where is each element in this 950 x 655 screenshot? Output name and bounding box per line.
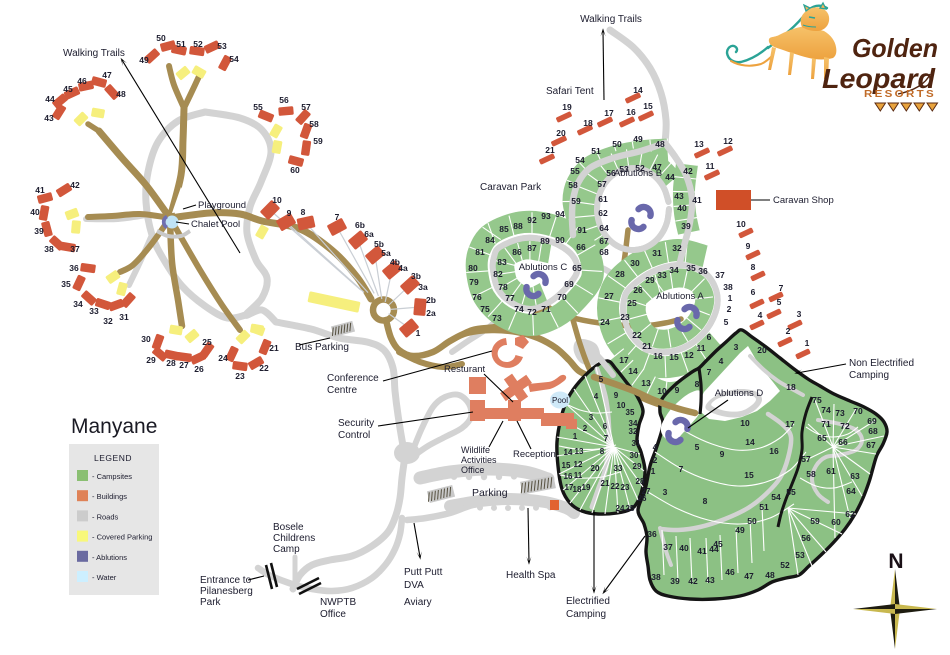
- svg-text:74: 74: [514, 304, 524, 314]
- svg-text:32: 32: [629, 427, 638, 436]
- svg-text:Activities: Activities: [461, 455, 497, 465]
- svg-text:Caravan Park: Caravan Park: [480, 182, 542, 193]
- svg-text:52: 52: [193, 39, 203, 49]
- svg-text:Walking Trails: Walking Trails: [580, 14, 642, 25]
- svg-text:37: 37: [715, 270, 725, 280]
- svg-text:36: 36: [69, 263, 79, 273]
- svg-text:4: 4: [758, 310, 763, 320]
- svg-text:20: 20: [556, 128, 566, 138]
- svg-text:13: 13: [694, 139, 704, 149]
- svg-text:Health Spa: Health Spa: [506, 570, 556, 581]
- svg-text:22: 22: [259, 363, 269, 373]
- svg-text:26: 26: [633, 285, 643, 295]
- svg-text:20: 20: [591, 464, 600, 473]
- svg-text:22: 22: [611, 482, 620, 491]
- svg-text:Childrens: Childrens: [273, 533, 315, 544]
- svg-text:Safari Tent: Safari Tent: [546, 86, 594, 97]
- svg-text:35: 35: [61, 279, 71, 289]
- svg-text:63: 63: [850, 471, 860, 481]
- svg-text:37: 37: [70, 244, 80, 254]
- svg-text:17: 17: [619, 355, 629, 365]
- svg-text:75: 75: [480, 304, 490, 314]
- svg-text:46: 46: [77, 76, 87, 86]
- svg-text:59: 59: [313, 136, 323, 146]
- svg-text:8: 8: [695, 379, 700, 389]
- svg-text:77: 77: [505, 293, 515, 303]
- svg-text:11: 11: [697, 343, 706, 353]
- svg-text:3: 3: [663, 487, 668, 497]
- svg-text:Electrified: Electrified: [566, 596, 610, 607]
- svg-text:1: 1: [728, 293, 733, 303]
- svg-text:39: 39: [681, 221, 691, 231]
- svg-text:31: 31: [652, 248, 662, 258]
- svg-text:24: 24: [616, 504, 625, 513]
- svg-text:Camping: Camping: [566, 609, 606, 620]
- svg-text:7: 7: [679, 464, 684, 474]
- svg-text:17: 17: [785, 419, 795, 429]
- svg-text:76: 76: [472, 292, 482, 302]
- svg-text:62: 62: [845, 509, 855, 519]
- svg-text:Office: Office: [461, 465, 484, 475]
- svg-text:Ablutions A: Ablutions A: [656, 291, 704, 302]
- svg-text:15: 15: [562, 461, 571, 470]
- svg-text:16: 16: [653, 351, 663, 361]
- svg-text:21: 21: [601, 479, 610, 488]
- svg-text:9: 9: [675, 385, 680, 395]
- svg-text:24: 24: [600, 317, 610, 327]
- svg-text:9: 9: [614, 391, 619, 400]
- svg-text:Pilanesberg: Pilanesberg: [200, 586, 253, 597]
- svg-text:51: 51: [176, 39, 186, 49]
- svg-text:87: 87: [527, 243, 537, 253]
- svg-text:Conference: Conference: [327, 373, 379, 384]
- svg-text:49: 49: [633, 134, 643, 144]
- svg-text:44: 44: [709, 544, 719, 554]
- svg-text:19: 19: [562, 102, 572, 112]
- svg-text:70: 70: [557, 292, 567, 302]
- svg-text:60: 60: [831, 517, 841, 527]
- svg-text:Security: Security: [338, 418, 374, 429]
- svg-text:9: 9: [746, 241, 751, 251]
- svg-text:69: 69: [867, 416, 877, 426]
- svg-text:3b: 3b: [411, 271, 421, 281]
- svg-text:64: 64: [846, 486, 856, 496]
- svg-text:14: 14: [628, 366, 638, 376]
- svg-text:8: 8: [600, 447, 605, 456]
- svg-text:17: 17: [604, 108, 614, 118]
- svg-text:8: 8: [301, 207, 306, 217]
- svg-text:6: 6: [751, 287, 756, 297]
- svg-text:59: 59: [810, 516, 820, 526]
- svg-text:15: 15: [643, 101, 653, 111]
- svg-text:61: 61: [826, 466, 836, 476]
- svg-text:66: 66: [576, 242, 586, 252]
- svg-text:81: 81: [475, 247, 485, 257]
- svg-text:16: 16: [626, 107, 636, 117]
- svg-text:32: 32: [672, 243, 682, 253]
- svg-text:15: 15: [744, 470, 754, 480]
- svg-text:4: 4: [653, 442, 658, 452]
- svg-text:73: 73: [492, 313, 502, 323]
- svg-text:43: 43: [44, 113, 54, 123]
- svg-text:4: 4: [719, 356, 724, 366]
- svg-text:50: 50: [612, 139, 622, 149]
- svg-text:70: 70: [853, 406, 863, 416]
- svg-text:39: 39: [670, 576, 680, 586]
- svg-text:28: 28: [636, 477, 645, 486]
- svg-text:20: 20: [757, 345, 767, 355]
- svg-text:57: 57: [301, 102, 311, 112]
- svg-text:59: 59: [571, 196, 581, 206]
- svg-text:4: 4: [594, 392, 599, 401]
- svg-text:56: 56: [801, 533, 811, 543]
- svg-text:91: 91: [577, 225, 587, 235]
- svg-text:Office: Office: [320, 609, 346, 620]
- svg-text:NWPTB: NWPTB: [320, 597, 356, 608]
- svg-text:67: 67: [599, 236, 609, 246]
- svg-text:69: 69: [564, 279, 574, 289]
- svg-text:Wildlife: Wildlife: [461, 445, 490, 455]
- svg-text:50: 50: [747, 516, 757, 526]
- svg-text:1: 1: [573, 432, 578, 441]
- svg-text:Reception: Reception: [513, 449, 556, 460]
- svg-text:44: 44: [45, 94, 55, 104]
- svg-text:Putt Putt: Putt Putt: [404, 567, 443, 578]
- svg-text:15: 15: [669, 352, 679, 362]
- svg-text:58: 58: [568, 180, 578, 190]
- svg-text:10: 10: [272, 195, 282, 205]
- svg-text:Manyane: Manyane: [71, 415, 157, 438]
- svg-text:2: 2: [727, 304, 732, 314]
- svg-text:52: 52: [780, 560, 790, 570]
- svg-text:- Ablutions: - Ablutions: [92, 553, 127, 562]
- svg-text:5: 5: [599, 375, 604, 384]
- svg-text:51: 51: [591, 146, 601, 156]
- svg-text:7: 7: [707, 367, 712, 377]
- svg-text:42: 42: [688, 576, 698, 586]
- svg-text:21: 21: [545, 145, 555, 155]
- svg-text:- Roads: - Roads: [92, 512, 119, 521]
- svg-text:23: 23: [620, 312, 630, 322]
- svg-text:12: 12: [684, 350, 694, 360]
- svg-text:Bosele: Bosele: [273, 522, 304, 533]
- svg-text:29: 29: [633, 462, 642, 471]
- svg-text:11: 11: [706, 161, 715, 171]
- svg-text:1: 1: [416, 328, 421, 338]
- svg-text:86: 86: [512, 247, 522, 257]
- svg-text:11: 11: [574, 471, 583, 480]
- svg-text:72: 72: [527, 307, 537, 317]
- svg-text:3: 3: [797, 309, 802, 319]
- svg-text:27: 27: [604, 291, 614, 301]
- svg-text:48: 48: [765, 570, 775, 580]
- svg-text:5: 5: [695, 442, 700, 452]
- svg-text:6a: 6a: [364, 229, 374, 239]
- svg-text:Parking: Parking: [472, 487, 508, 499]
- svg-text:12: 12: [723, 136, 733, 146]
- svg-text:Entrance to: Entrance to: [200, 575, 252, 586]
- svg-text:80: 80: [468, 263, 478, 273]
- svg-text:55: 55: [570, 166, 580, 176]
- svg-text:19: 19: [582, 483, 591, 492]
- svg-text:64: 64: [599, 223, 609, 233]
- svg-text:39: 39: [34, 226, 44, 236]
- svg-text:- Covered Parking: - Covered Parking: [92, 533, 152, 542]
- svg-text:33: 33: [657, 270, 667, 280]
- svg-text:40: 40: [679, 543, 689, 553]
- svg-text:22: 22: [632, 330, 642, 340]
- svg-text:83: 83: [497, 257, 507, 267]
- svg-text:35: 35: [626, 408, 635, 417]
- svg-text:10: 10: [740, 418, 750, 428]
- svg-text:57: 57: [801, 454, 811, 464]
- svg-text:- Water: - Water: [92, 573, 117, 582]
- svg-text:65: 65: [817, 433, 827, 443]
- svg-text:41: 41: [692, 195, 702, 205]
- svg-text:67: 67: [866, 440, 876, 450]
- svg-text:25: 25: [627, 298, 637, 308]
- svg-text:24: 24: [218, 353, 228, 363]
- svg-text:47: 47: [744, 571, 754, 581]
- svg-text:41: 41: [35, 185, 45, 195]
- svg-text:3: 3: [589, 413, 594, 422]
- svg-text:Chalet Pool: Chalet Pool: [191, 219, 240, 230]
- svg-text:54: 54: [229, 54, 239, 64]
- svg-text:42: 42: [70, 180, 80, 190]
- svg-text:40: 40: [30, 207, 40, 217]
- svg-text:32: 32: [103, 316, 113, 326]
- svg-text:94: 94: [555, 209, 565, 219]
- svg-text:34: 34: [73, 299, 83, 309]
- svg-text:27: 27: [179, 360, 189, 370]
- svg-text:37: 37: [663, 542, 673, 552]
- svg-text:41: 41: [697, 546, 707, 556]
- svg-text:16: 16: [564, 472, 573, 481]
- svg-text:DVA: DVA: [404, 580, 424, 591]
- svg-text:- Buildings: - Buildings: [92, 492, 127, 501]
- svg-text:Playground: Playground: [198, 200, 246, 211]
- svg-text:71: 71: [821, 419, 831, 429]
- svg-text:4a: 4a: [398, 263, 408, 273]
- svg-text:2: 2: [653, 455, 658, 465]
- svg-text:68: 68: [868, 426, 878, 436]
- svg-text:71: 71: [541, 304, 551, 314]
- svg-text:29: 29: [645, 275, 655, 285]
- svg-text:1: 1: [805, 338, 810, 348]
- svg-text:79: 79: [469, 277, 479, 287]
- svg-text:2: 2: [786, 326, 791, 336]
- svg-text:65: 65: [572, 263, 582, 273]
- svg-text:54: 54: [575, 155, 585, 165]
- svg-text:66: 66: [838, 437, 848, 447]
- svg-text:Resturant: Resturant: [444, 364, 486, 375]
- svg-text:Non Electrified: Non Electrified: [849, 358, 914, 369]
- svg-text:36: 36: [698, 266, 708, 276]
- svg-text:38: 38: [651, 572, 661, 582]
- svg-text:46: 46: [725, 567, 735, 577]
- svg-text:92: 92: [527, 215, 537, 225]
- svg-text:40: 40: [677, 203, 687, 213]
- svg-text:2: 2: [583, 424, 588, 433]
- svg-text:33: 33: [89, 306, 99, 316]
- svg-text:8: 8: [751, 262, 756, 272]
- svg-text:30: 30: [141, 334, 151, 344]
- svg-text:- Campsites: - Campsites: [92, 472, 132, 481]
- svg-text:28: 28: [166, 358, 176, 368]
- svg-text:Golden: Golden: [852, 33, 938, 63]
- svg-text:21: 21: [642, 341, 652, 351]
- svg-text:16: 16: [769, 446, 779, 456]
- svg-text:14: 14: [633, 85, 643, 95]
- svg-text:38: 38: [723, 282, 733, 292]
- svg-text:14: 14: [745, 437, 755, 447]
- svg-text:Park: Park: [200, 597, 222, 608]
- svg-text:43: 43: [705, 575, 715, 585]
- svg-text:43: 43: [674, 191, 684, 201]
- svg-text:53: 53: [217, 41, 227, 51]
- svg-text:9: 9: [720, 449, 725, 459]
- svg-text:14: 14: [564, 448, 573, 457]
- svg-text:55: 55: [253, 102, 263, 112]
- svg-text:85: 85: [499, 224, 509, 234]
- svg-text:88: 88: [513, 221, 523, 231]
- svg-text:56: 56: [279, 95, 289, 105]
- svg-text:Ablutions B: Ablutions B: [614, 168, 662, 179]
- svg-text:29: 29: [146, 355, 156, 365]
- svg-text:5a: 5a: [381, 248, 391, 258]
- svg-text:26: 26: [638, 494, 647, 503]
- svg-text:7: 7: [604, 434, 609, 443]
- svg-text:55: 55: [786, 487, 796, 497]
- svg-text:82: 82: [493, 269, 503, 279]
- svg-text:Aviary: Aviary: [404, 597, 432, 608]
- svg-text:Pool: Pool: [552, 396, 568, 405]
- svg-text:12: 12: [574, 460, 583, 469]
- svg-text:58: 58: [806, 469, 816, 479]
- svg-text:51: 51: [759, 502, 769, 512]
- svg-text:6: 6: [707, 332, 712, 342]
- svg-text:10: 10: [657, 386, 667, 396]
- svg-text:44: 44: [665, 172, 675, 182]
- svg-text:47: 47: [102, 70, 112, 80]
- svg-text:Caravan Shop: Caravan Shop: [773, 195, 834, 206]
- svg-text:23: 23: [621, 483, 630, 492]
- svg-text:LEGEND: LEGEND: [94, 453, 132, 463]
- svg-text:Camp: Camp: [273, 544, 300, 555]
- svg-text:78: 78: [498, 282, 508, 292]
- svg-text:3: 3: [734, 342, 739, 352]
- svg-text:1: 1: [651, 466, 656, 476]
- svg-text:36: 36: [647, 529, 657, 539]
- svg-text:49: 49: [735, 525, 745, 535]
- svg-text:23: 23: [235, 371, 245, 381]
- svg-text:93: 93: [541, 211, 551, 221]
- svg-text:2a: 2a: [426, 308, 436, 318]
- svg-text:30: 30: [630, 258, 640, 268]
- svg-text:6: 6: [603, 422, 608, 431]
- svg-text:Centre: Centre: [327, 385, 357, 396]
- svg-text:73: 73: [835, 408, 845, 418]
- svg-text:25: 25: [626, 504, 635, 513]
- svg-text:9: 9: [287, 208, 292, 218]
- svg-text:33: 33: [614, 464, 623, 473]
- svg-text:45: 45: [63, 84, 73, 94]
- svg-text:35: 35: [686, 263, 696, 273]
- svg-text:Ablutions D: Ablutions D: [715, 388, 764, 399]
- svg-text:3a: 3a: [418, 282, 428, 292]
- svg-text:54: 54: [771, 492, 781, 502]
- svg-text:13: 13: [641, 378, 651, 388]
- svg-text:8: 8: [703, 496, 708, 506]
- svg-text:38: 38: [44, 244, 54, 254]
- svg-text:68: 68: [599, 247, 609, 257]
- svg-text:18: 18: [786, 382, 796, 392]
- svg-text:75: 75: [812, 395, 822, 405]
- svg-text:25: 25: [202, 337, 212, 347]
- svg-text:5: 5: [777, 297, 782, 307]
- svg-text:Camping: Camping: [849, 370, 889, 381]
- svg-text:Walking Trails: Walking Trails: [63, 48, 125, 59]
- svg-text:34: 34: [669, 265, 679, 275]
- svg-text:48: 48: [655, 139, 665, 149]
- svg-text:90: 90: [555, 235, 565, 245]
- svg-text:53: 53: [795, 550, 805, 560]
- svg-text:30: 30: [630, 451, 639, 460]
- svg-text:57: 57: [597, 179, 607, 189]
- svg-text:72: 72: [840, 421, 850, 431]
- svg-text:7: 7: [335, 212, 340, 222]
- svg-text:5: 5: [724, 317, 729, 327]
- svg-text:58: 58: [309, 119, 319, 129]
- svg-text:48: 48: [116, 89, 126, 99]
- svg-text:89: 89: [540, 236, 550, 246]
- svg-text:Control: Control: [338, 430, 370, 441]
- svg-text:Ablutions C: Ablutions C: [519, 262, 568, 273]
- svg-text:RESORTS: RESORTS: [864, 89, 936, 100]
- svg-text:21: 21: [269, 343, 279, 353]
- svg-text:49: 49: [139, 55, 149, 65]
- svg-text:62: 62: [598, 208, 608, 218]
- svg-text:10: 10: [736, 219, 746, 229]
- svg-text:60: 60: [290, 165, 300, 175]
- svg-text:74: 74: [821, 405, 831, 415]
- svg-text:50: 50: [156, 33, 166, 43]
- svg-text:18: 18: [583, 118, 593, 128]
- svg-text:13: 13: [575, 447, 584, 456]
- svg-text:26: 26: [194, 364, 204, 374]
- svg-text:84: 84: [485, 235, 495, 245]
- svg-text:2b: 2b: [426, 295, 436, 305]
- svg-text:28: 28: [615, 269, 625, 279]
- svg-text:61: 61: [598, 194, 608, 204]
- svg-text:N: N: [888, 550, 903, 573]
- svg-text:31: 31: [632, 439, 641, 448]
- svg-text:31: 31: [119, 312, 129, 322]
- svg-text:7: 7: [779, 283, 784, 293]
- svg-text:42: 42: [683, 166, 693, 176]
